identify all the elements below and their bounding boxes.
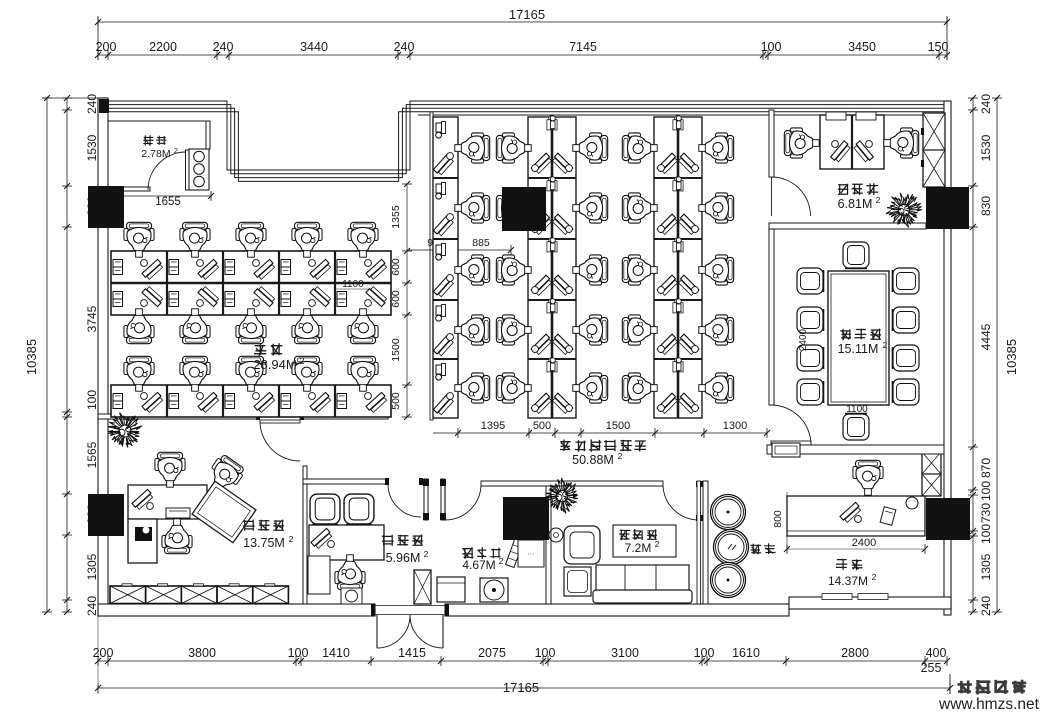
svg-text:1100: 1100: [342, 279, 364, 290]
svg-text:28.94M: 28.94M: [253, 357, 296, 372]
svg-text:7.2M: 7.2M: [625, 541, 652, 555]
svg-text:2: 2: [876, 195, 881, 205]
svg-text:1530: 1530: [979, 134, 993, 161]
svg-text:1500: 1500: [606, 420, 630, 432]
svg-text:500: 500: [390, 392, 402, 410]
svg-text:17165: 17165: [509, 7, 545, 22]
svg-text:14.37M: 14.37M: [828, 574, 868, 588]
svg-text:2800: 2800: [841, 646, 869, 660]
svg-text:240: 240: [85, 94, 99, 114]
svg-text:2: 2: [174, 146, 178, 155]
svg-text:100: 100: [85, 390, 99, 410]
svg-text:2: 2: [883, 340, 888, 350]
svg-text:240: 240: [979, 94, 993, 114]
svg-text:600: 600: [390, 290, 402, 308]
svg-text:1565: 1565: [85, 441, 99, 468]
svg-text:100: 100: [979, 481, 993, 501]
svg-text:885: 885: [472, 237, 490, 249]
svg-text:1355: 1355: [390, 205, 402, 229]
svg-text:100: 100: [979, 524, 993, 544]
svg-text:730: 730: [979, 503, 993, 523]
svg-text:2: 2: [618, 451, 623, 461]
svg-text:800: 800: [772, 510, 784, 528]
svg-text:5.96M: 5.96M: [386, 551, 421, 565]
svg-text:2075: 2075: [478, 646, 506, 660]
svg-text:3745: 3745: [85, 305, 99, 332]
svg-text:2: 2: [289, 534, 294, 544]
svg-text:240: 240: [394, 40, 415, 54]
svg-text:50.88M: 50.88M: [572, 453, 614, 467]
svg-text:10385: 10385: [1004, 339, 1019, 375]
svg-text:150: 150: [928, 40, 949, 54]
svg-text:13.75M: 13.75M: [243, 536, 285, 550]
svg-text:1410: 1410: [322, 646, 350, 660]
svg-text:2: 2: [499, 556, 504, 566]
svg-text:10385: 10385: [24, 339, 39, 375]
svg-text:1530: 1530: [85, 134, 99, 161]
svg-text:1395: 1395: [481, 420, 505, 432]
svg-text:3440: 3440: [300, 40, 328, 54]
svg-text:2.78M: 2.78M: [141, 148, 170, 160]
svg-text:100: 100: [761, 40, 782, 54]
svg-text:2: 2: [655, 539, 660, 549]
svg-text:870: 870: [979, 458, 993, 478]
svg-text:1415: 1415: [398, 646, 426, 660]
svg-text:100: 100: [535, 646, 556, 660]
svg-text:2: 2: [424, 549, 429, 559]
svg-text:600: 600: [390, 258, 402, 276]
svg-text:240: 240: [85, 596, 99, 616]
svg-text:100: 100: [288, 646, 309, 660]
svg-text:···: ···: [528, 551, 535, 558]
svg-text:www.hmzs.net: www.hmzs.net: [938, 696, 1040, 713]
svg-text:17165: 17165: [503, 680, 539, 695]
svg-text:3800: 3800: [188, 646, 216, 660]
svg-text:2400: 2400: [798, 328, 809, 351]
svg-text:1305: 1305: [85, 553, 99, 580]
svg-text:7145: 7145: [569, 40, 597, 54]
svg-text:1500: 1500: [390, 338, 402, 362]
svg-text:500: 500: [533, 420, 551, 432]
svg-text:100: 100: [694, 646, 715, 660]
svg-text:1655: 1655: [155, 196, 181, 208]
svg-text:2: 2: [872, 572, 877, 582]
svg-text:1610: 1610: [732, 646, 760, 660]
svg-text:830: 830: [979, 196, 993, 216]
svg-text:255: 255: [921, 661, 942, 675]
svg-text:200: 200: [96, 40, 117, 54]
svg-text:3100: 3100: [611, 646, 639, 660]
svg-text:400: 400: [926, 646, 947, 660]
svg-text:6.81M: 6.81M: [838, 197, 873, 211]
svg-text:4.67M: 4.67M: [462, 558, 495, 572]
svg-text:2: 2: [299, 356, 304, 366]
svg-text:240: 240: [213, 40, 234, 54]
svg-text:1305: 1305: [979, 553, 993, 580]
svg-text:15.11M: 15.11M: [838, 342, 879, 356]
svg-text:3450: 3450: [848, 40, 876, 54]
svg-text:2400: 2400: [852, 537, 876, 549]
svg-text:2200: 2200: [149, 40, 177, 54]
svg-text:200: 200: [93, 646, 114, 660]
svg-text:4445: 4445: [979, 323, 993, 350]
svg-text:240: 240: [979, 596, 993, 616]
svg-text:1100: 1100: [846, 404, 868, 415]
svg-text:1300: 1300: [723, 420, 747, 432]
